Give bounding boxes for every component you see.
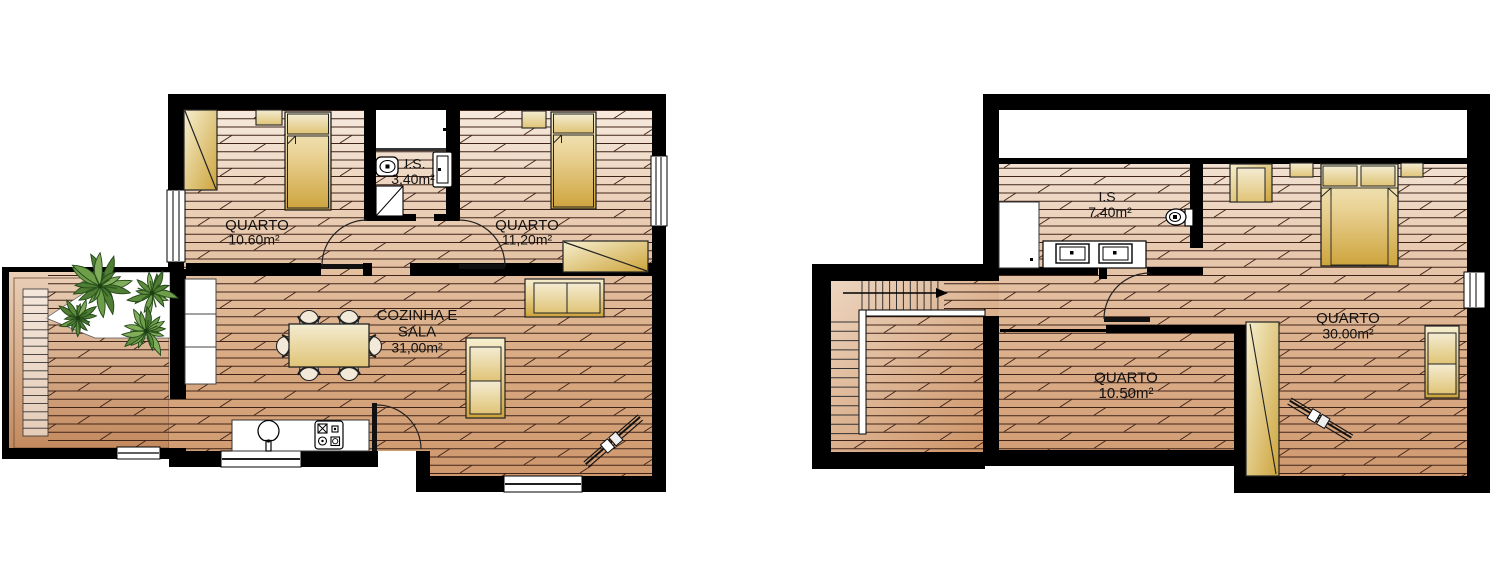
svg-text:3,40m²: 3,40m² (391, 171, 435, 187)
svg-text:I.S.: I.S. (404, 156, 425, 172)
svg-text:I.S: I.S (1098, 189, 1115, 205)
svg-text:QUARTO: QUARTO (1094, 370, 1158, 387)
svg-text:10.50m²: 10.50m² (1098, 385, 1153, 402)
svg-text:10.60m²: 10.60m² (228, 232, 280, 248)
svg-text:COZINHA E: COZINHA E (377, 307, 458, 324)
svg-text:SALA: SALA (398, 324, 436, 341)
svg-text:7.40m²: 7.40m² (1088, 204, 1132, 220)
svg-text:QUARTO: QUARTO (1316, 310, 1380, 327)
svg-text:30.00m²: 30.00m² (1322, 326, 1374, 342)
svg-text:31,00m²: 31,00m² (391, 340, 443, 356)
svg-text:11,20m²: 11,20m² (502, 232, 553, 248)
